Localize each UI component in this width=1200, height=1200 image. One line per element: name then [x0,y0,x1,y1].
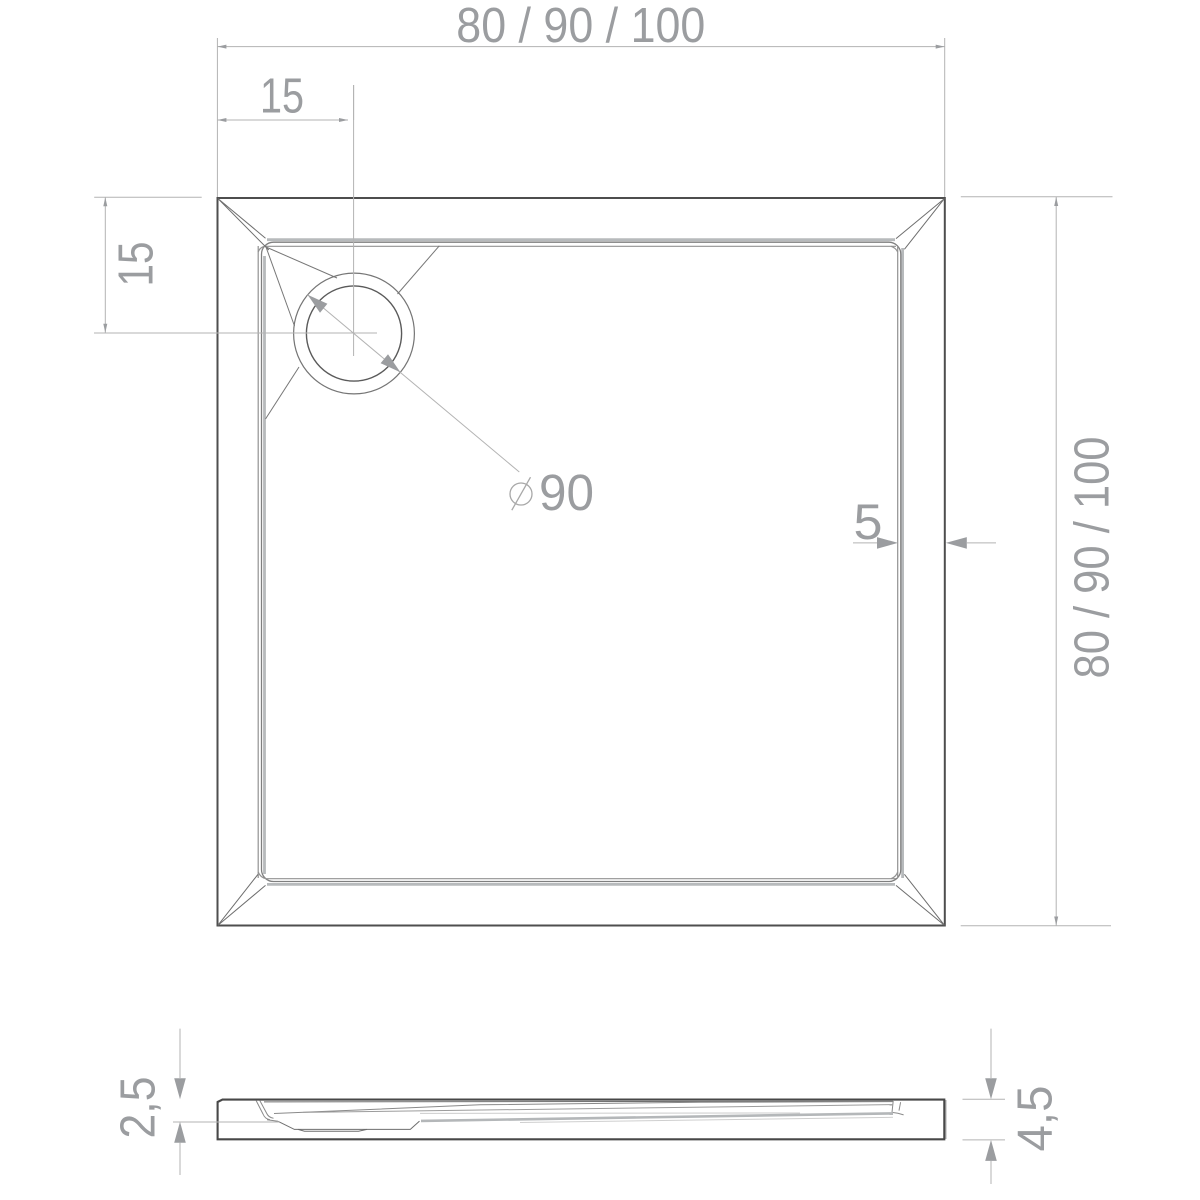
svg-text:90: 90 [539,464,594,521]
svg-text:15: 15 [110,242,164,287]
svg-text:4,5: 4,5 [1009,1086,1063,1152]
svg-text:5: 5 [854,493,883,550]
svg-text:2,5: 2,5 [112,1077,166,1139]
svg-text:80 / 90 / 100: 80 / 90 / 100 [1066,437,1120,679]
svg-text:80 / 90 / 100: 80 / 90 / 100 [456,0,705,53]
svg-text:15: 15 [260,69,304,123]
